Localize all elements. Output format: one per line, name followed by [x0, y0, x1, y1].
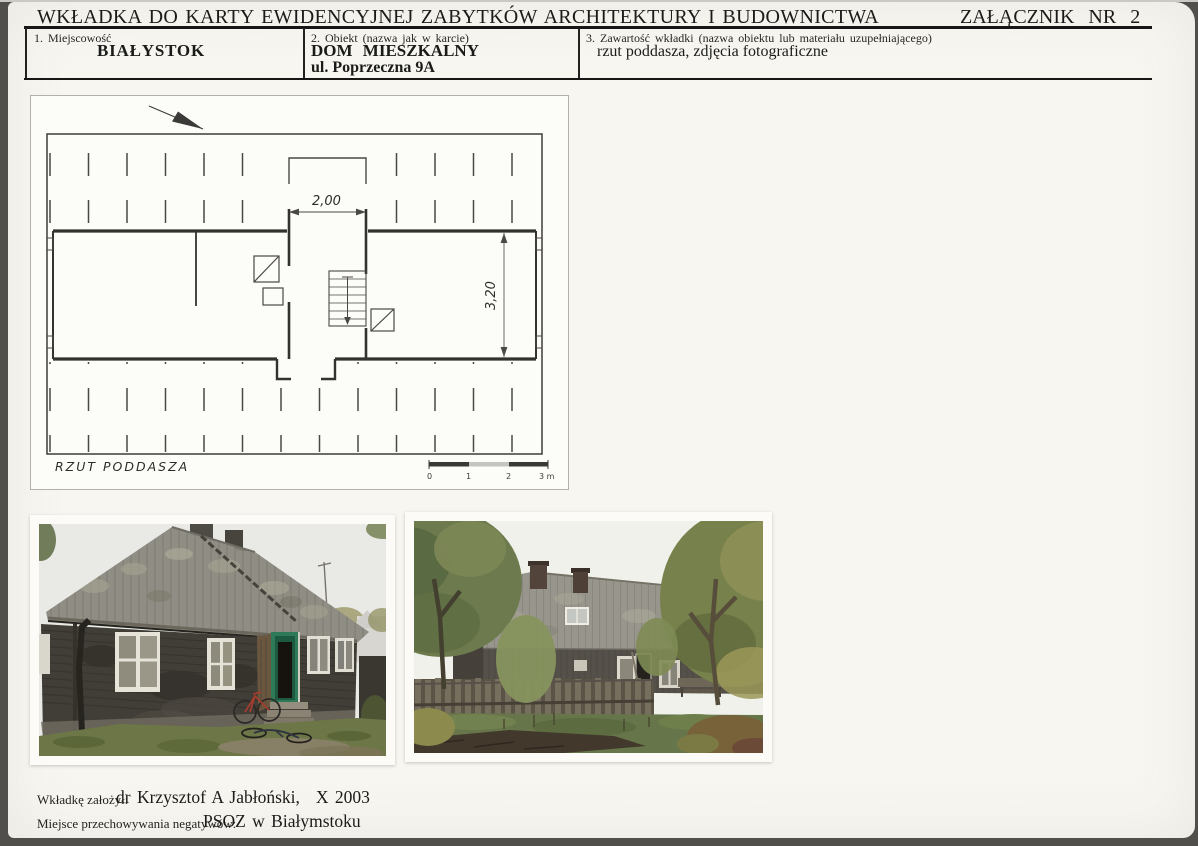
scale-tick-0: 0 — [427, 472, 432, 481]
attic-side-walls — [53, 231, 536, 359]
author-name: dr Krzysztof A Jabłoński, — [116, 787, 300, 807]
dimension-depth-label: 3,20 — [484, 281, 499, 310]
scale-tick-3: 3 m — [539, 472, 555, 481]
scale-bar: 0 1 2 3 m — [427, 460, 555, 481]
photo-front-elevation — [30, 515, 395, 765]
object-name: DOM MIESZKALNY — [311, 41, 479, 61]
dimension-width-label: 2,00 — [312, 194, 341, 209]
header-divider-bottom — [24, 78, 1152, 81]
side-window — [39, 634, 50, 674]
staircase — [329, 271, 366, 326]
window-1 — [115, 632, 160, 692]
photo-garden-elevation — [405, 512, 772, 762]
field-divider-2 — [578, 28, 580, 78]
window-3 — [307, 636, 330, 674]
plan-caption: RZUT PODDASZA — [55, 459, 189, 474]
author-value: dr Krzysztof A Jabłoński,X 2003 — [116, 787, 370, 808]
contents-value: rzut poddasza, zdjęcia fotograficzne — [597, 43, 828, 61]
negatives-value: PSOZ w Białymstoku — [203, 811, 361, 832]
garden-foreground — [414, 708, 763, 753]
author-date: X 2003 — [316, 787, 370, 807]
dimension-depth: 3,20 — [484, 233, 507, 357]
sapling-small — [636, 618, 678, 676]
field-border-left — [25, 28, 27, 78]
sapling-front — [496, 615, 556, 703]
window-4 — [335, 638, 354, 672]
north-arrow-icon — [149, 106, 203, 129]
locality-value: BIAŁYSTOK — [97, 41, 205, 61]
scale-tick-2: 2 — [506, 472, 511, 481]
author-label: Wkładkę założył: — [37, 792, 128, 808]
small-window — [574, 660, 587, 671]
floor-plan-drawing: 2,00 3,20 RZUT PODDASZA — [30, 95, 569, 490]
field-divider-1 — [303, 28, 305, 78]
window-2 — [207, 638, 235, 690]
header-divider-top — [24, 26, 1152, 29]
chimney-left — [254, 256, 283, 305]
skylight — [566, 608, 588, 624]
object-address: ul. Poprzeczna 9A — [311, 59, 435, 77]
scale-tick-1: 1 — [466, 472, 471, 481]
chimney-right — [371, 309, 394, 331]
